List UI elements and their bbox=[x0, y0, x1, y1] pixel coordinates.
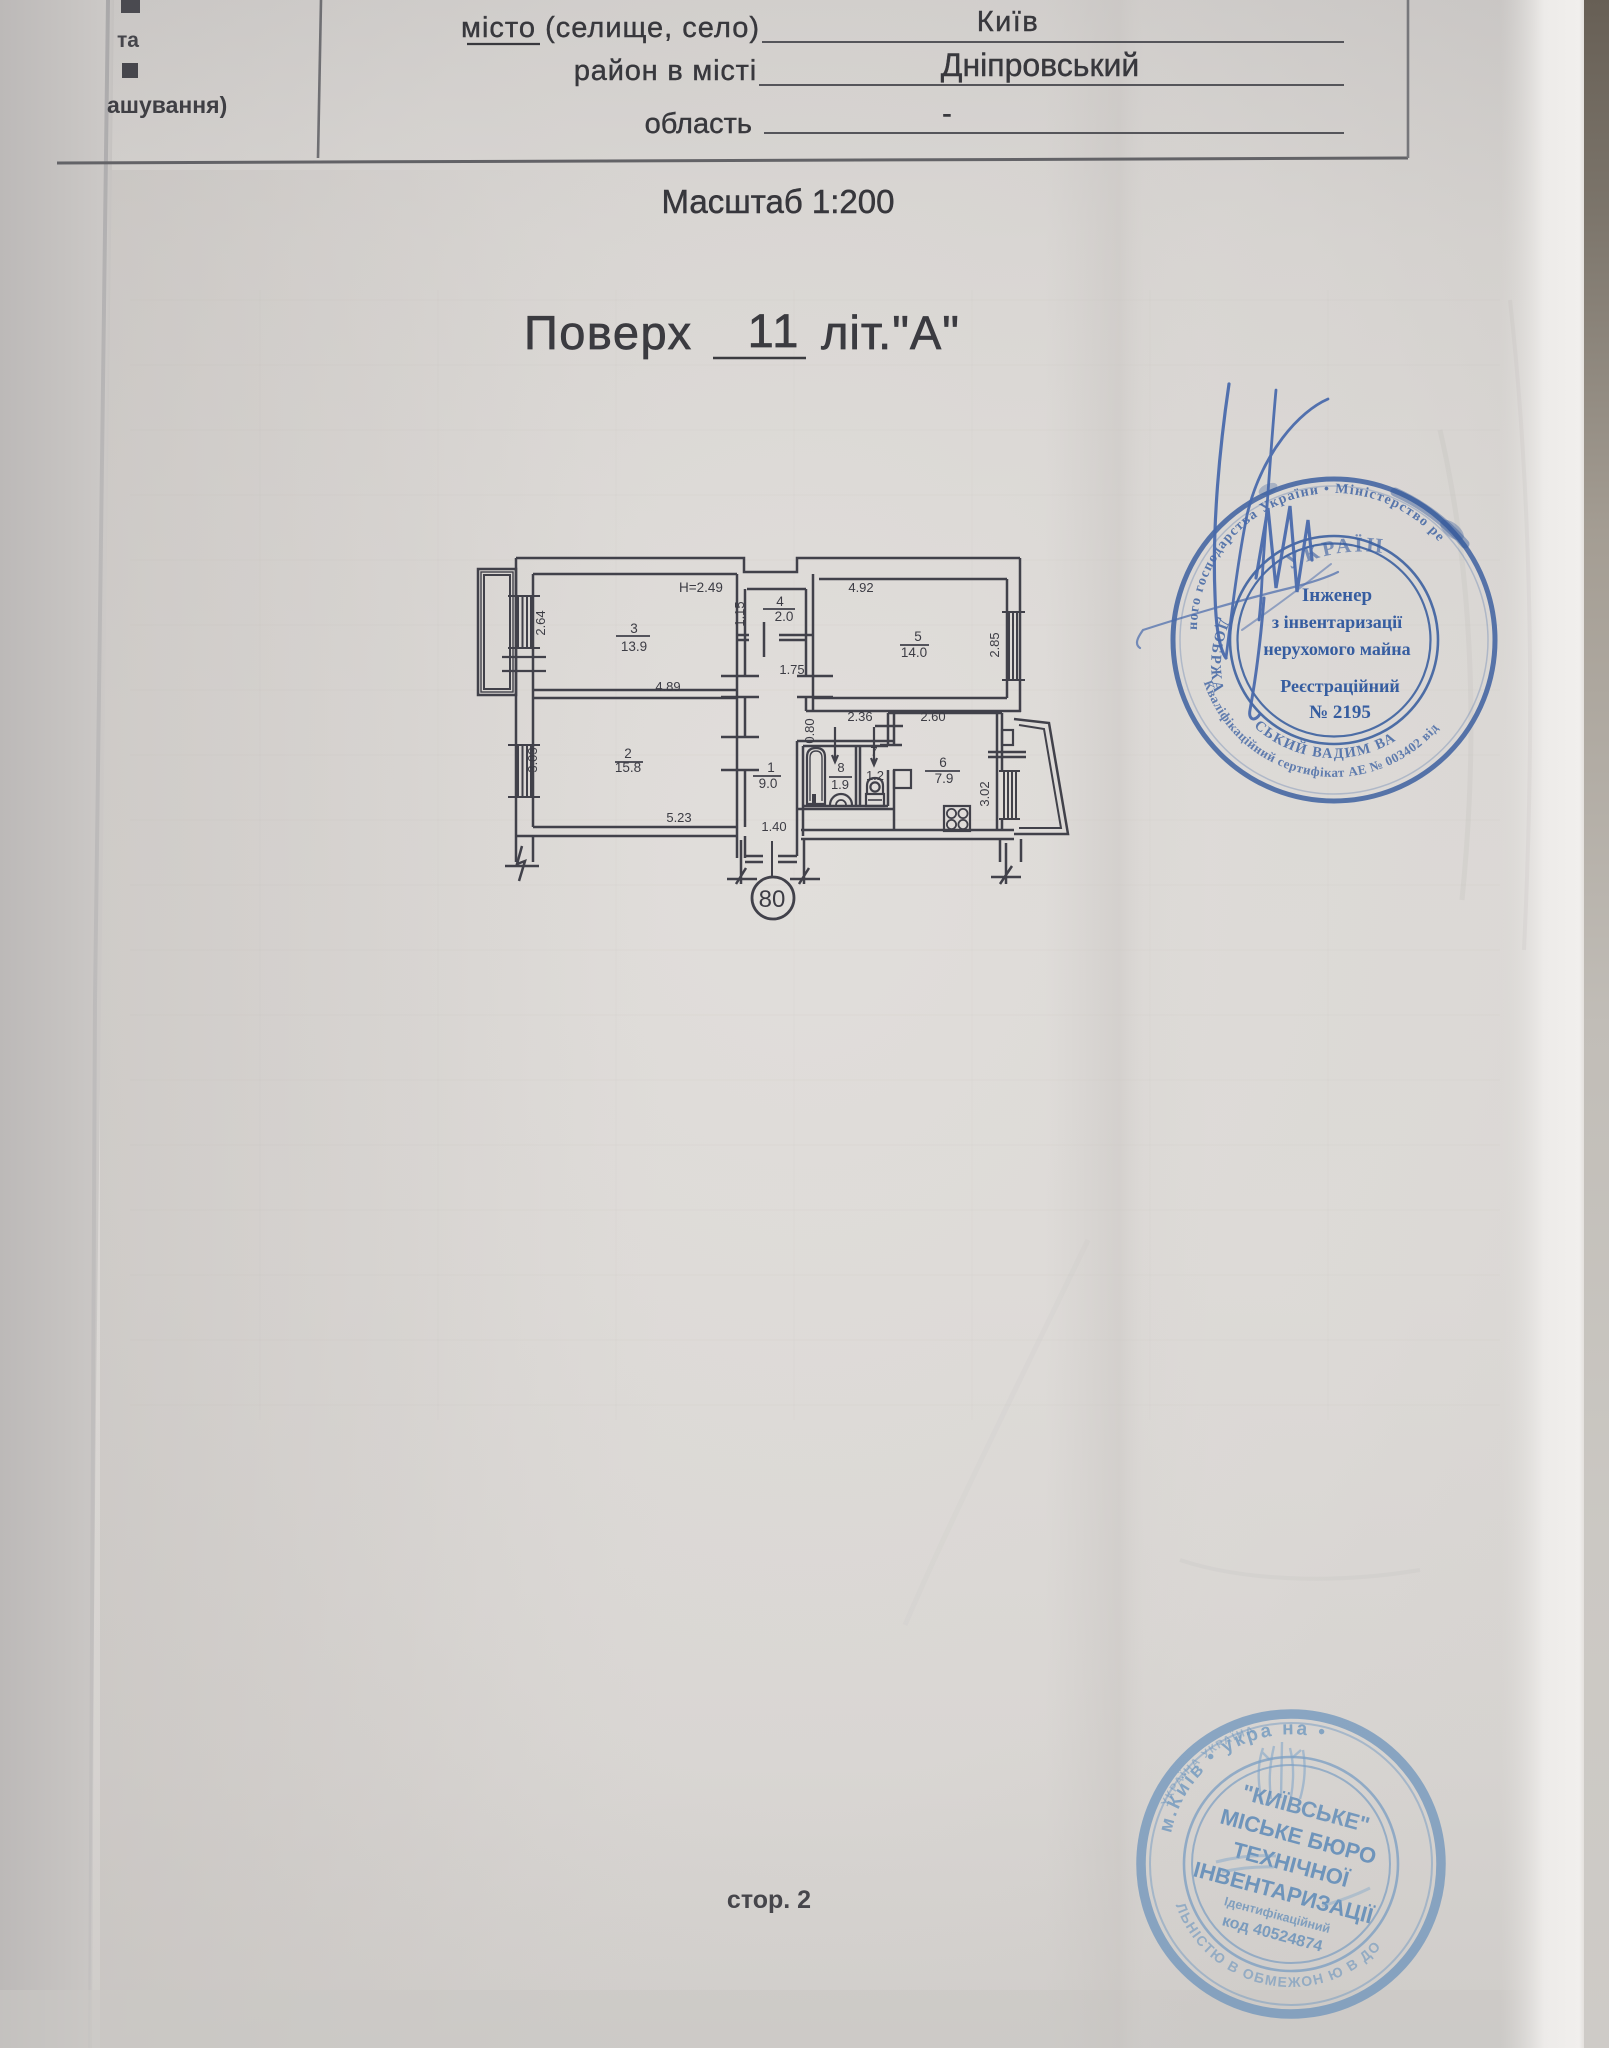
svg-text:7: 7 bbox=[870, 744, 877, 759]
svg-text:1: 1 bbox=[767, 760, 775, 775]
svg-text:5.23: 5.23 bbox=[666, 810, 691, 825]
svg-text:з інвентаризації: з інвентаризації bbox=[1272, 612, 1403, 632]
svg-text:2.36: 2.36 bbox=[847, 709, 872, 724]
svg-text:2.85: 2.85 bbox=[987, 632, 1002, 657]
svg-text:1.9: 1.9 bbox=[831, 777, 849, 792]
svg-text:4.89: 4.89 bbox=[655, 679, 680, 694]
svg-text:1.15: 1.15 bbox=[732, 601, 747, 626]
svg-text:Інженер: Інженер bbox=[1302, 585, 1372, 606]
svg-text:0.80: 0.80 bbox=[802, 718, 817, 743]
svg-text:Реєстраційний: Реєстраційний bbox=[1280, 676, 1399, 696]
svg-text:та: та bbox=[117, 29, 139, 52]
svg-text:Київ: Київ bbox=[977, 6, 1040, 38]
svg-text:-: - bbox=[942, 98, 952, 130]
svg-text:4: 4 bbox=[776, 594, 784, 609]
svg-text:3.03: 3.03 bbox=[525, 747, 540, 772]
svg-text:2.64: 2.64 bbox=[533, 610, 548, 635]
svg-text:14.0: 14.0 bbox=[901, 645, 927, 660]
svg-text:3: 3 bbox=[630, 621, 638, 636]
svg-text:11: 11 bbox=[748, 304, 801, 357]
svg-text:№ 2195: № 2195 bbox=[1309, 702, 1371, 723]
svg-text:H=2.49: H=2.49 bbox=[679, 580, 723, 595]
svg-text:ашування): ашування) bbox=[107, 92, 227, 118]
svg-text:стор. 2: стор. 2 bbox=[727, 1886, 811, 1914]
svg-text:9.0: 9.0 bbox=[759, 776, 778, 791]
svg-text:7.9: 7.9 bbox=[935, 771, 954, 786]
svg-text:5: 5 bbox=[914, 629, 922, 644]
svg-text:3.02: 3.02 bbox=[977, 781, 992, 806]
svg-text:4.92: 4.92 bbox=[848, 580, 873, 595]
svg-text:13.9: 13.9 bbox=[621, 639, 647, 654]
svg-text:1.40: 1.40 bbox=[761, 819, 786, 834]
svg-text:2: 2 bbox=[624, 746, 632, 761]
svg-text:1.2: 1.2 bbox=[866, 768, 884, 783]
svg-text:8: 8 bbox=[837, 760, 844, 775]
svg-text:80: 80 bbox=[759, 886, 786, 913]
svg-text:Масштаб 1:200: Масштаб 1:200 bbox=[662, 183, 895, 220]
svg-text:2.60: 2.60 bbox=[920, 709, 945, 724]
svg-text:Поверх: Поверх bbox=[524, 306, 693, 359]
svg-text:місто (селище, село): місто (селище, село) bbox=[461, 12, 760, 44]
svg-text:область: область bbox=[645, 108, 752, 140]
svg-text:2.0: 2.0 bbox=[775, 609, 794, 624]
svg-text:нерухомого майна: нерухомого майна bbox=[1263, 639, 1410, 659]
svg-text:Дніпровський: Дніпровський bbox=[941, 47, 1139, 83]
svg-text:6: 6 bbox=[939, 755, 947, 770]
svg-text:район в місті: район в місті bbox=[574, 55, 757, 87]
svg-text:літ."А": літ."А" bbox=[821, 306, 960, 359]
svg-text:1.75: 1.75 bbox=[779, 662, 804, 677]
